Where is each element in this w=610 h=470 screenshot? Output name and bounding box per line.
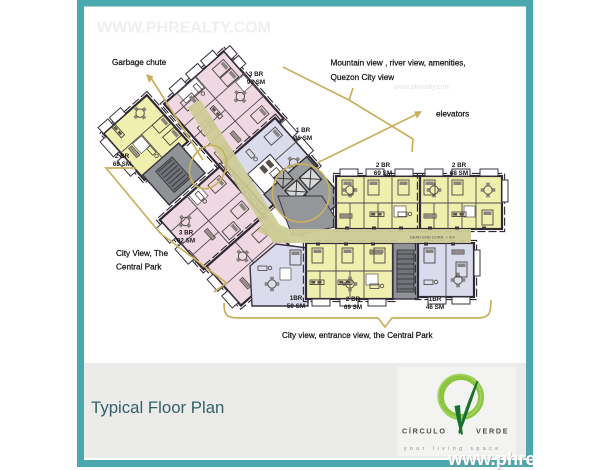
svg-text:92 SM: 92 SM <box>177 238 195 245</box>
svg-text:Central Park: Central Park <box>116 263 162 272</box>
svg-text:1BR: 1BR <box>290 295 303 302</box>
svg-text:93 SM: 93 SM <box>247 79 265 86</box>
svg-text:Typical Floor Plan: Typical Floor Plan <box>91 398 224 417</box>
svg-text:46 SM: 46 SM <box>294 135 312 142</box>
svg-text:2 BR: 2 BR <box>376 162 391 169</box>
svg-text:68 SM: 68 SM <box>113 161 131 168</box>
svg-text:2 BR: 2 BR <box>115 153 130 160</box>
svg-text:elevators: elevators <box>436 110 469 119</box>
svg-text:www.phrealty.com: www.phrealty.com <box>447 448 609 469</box>
svg-text:CÍRCULO: CÍRCULO <box>402 427 447 436</box>
svg-text:2 BR: 2 BR <box>346 296 361 303</box>
svg-text:City View, The: City View, The <box>116 249 168 258</box>
svg-text:69 SM: 69 SM <box>374 170 392 177</box>
svg-text:2 BR: 2 BR <box>452 162 467 169</box>
svg-text:City view, entrance view, the: City view, entrance view, the Central Pa… <box>282 331 434 340</box>
svg-text:DEAD END CORR. < 6m: DEAD END CORR. < 6m <box>410 235 455 240</box>
svg-text:50 SM: 50 SM <box>287 303 305 310</box>
svg-text:VERDE: VERDE <box>476 427 509 436</box>
svg-text:Quezon City view: Quezon City view <box>331 73 395 82</box>
svg-text:www.phrealty.com: www.phrealty.com <box>393 84 450 91</box>
svg-text:3 BR: 3 BR <box>179 230 194 237</box>
svg-text:69 SM: 69 SM <box>344 304 362 311</box>
svg-text:1BR: 1BR <box>429 296 442 303</box>
svg-text:46 SM: 46 SM <box>426 304 444 311</box>
svg-text:3 BR: 3 BR <box>249 71 264 78</box>
svg-text:Mountain view , river view, am: Mountain view , river view, amenities, <box>331 59 466 68</box>
svg-text:1 BR: 1 BR <box>296 127 311 134</box>
svg-text:Garbage chute: Garbage chute <box>112 58 167 67</box>
svg-text:WWW.PHREALTY.COM: WWW.PHREALTY.COM <box>97 20 271 37</box>
svg-text:68 SM: 68 SM <box>450 170 468 177</box>
